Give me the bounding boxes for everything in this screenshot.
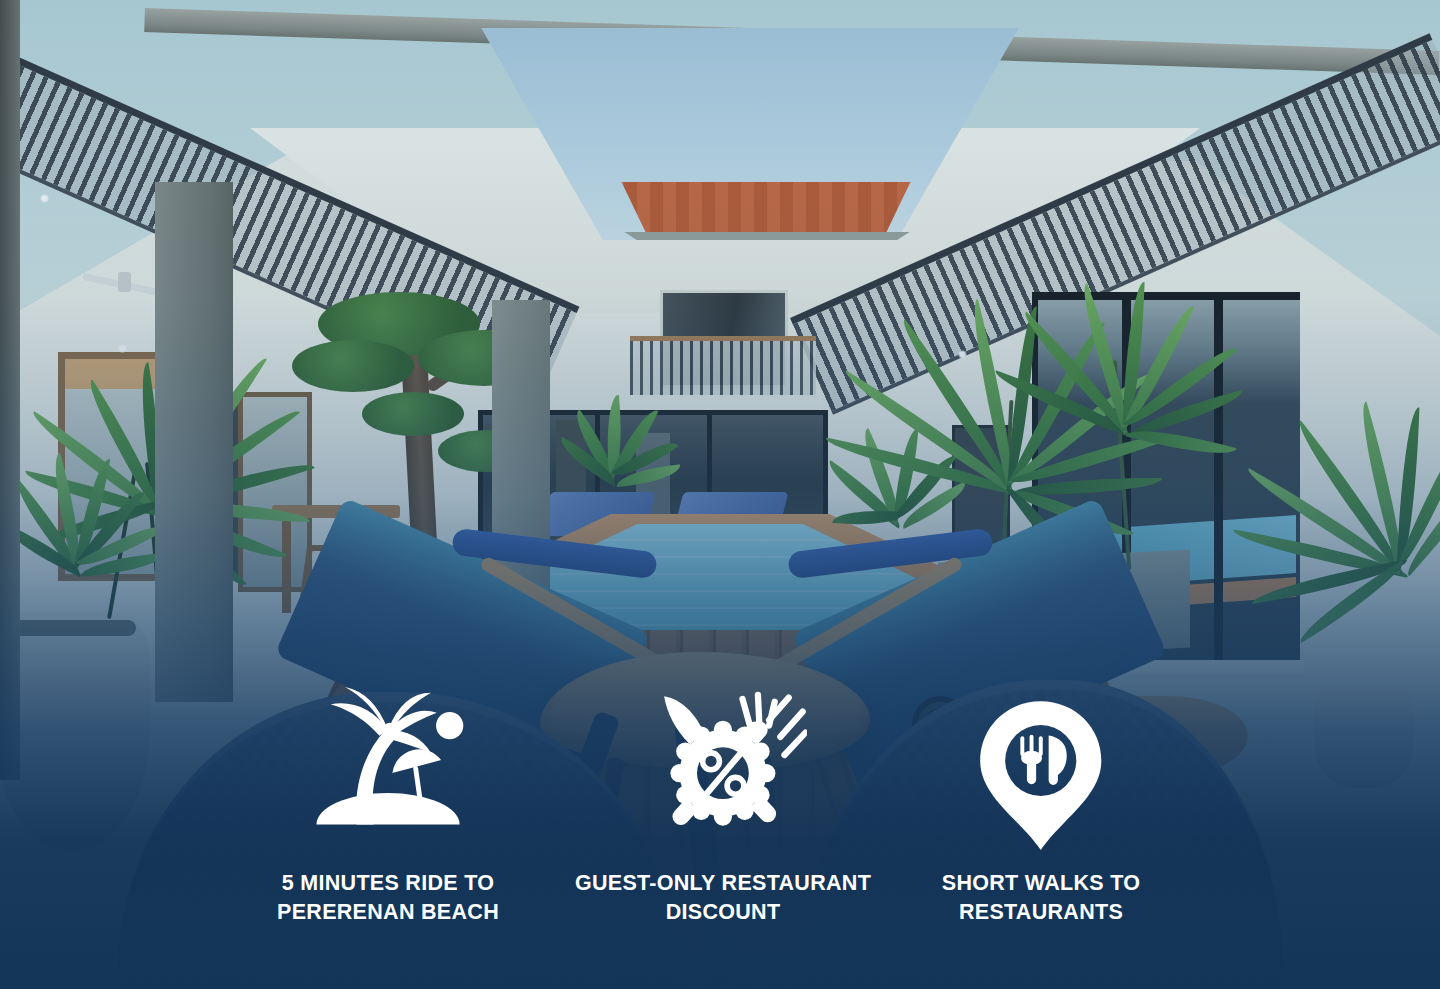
feature-callouts: 5 MINUTES RIDE TO PERERENAN BEACH <box>0 0 1440 989</box>
promo-image: 5 MINUTES RIDE TO PERERENAN BEACH <box>0 0 1440 989</box>
feature-restaurants-line2: RESTAURANTS <box>959 898 1123 927</box>
feature-restaurants: SHORT WALKS TO RESTAURANTS <box>942 695 1141 927</box>
feature-discount-line2: DISCOUNT <box>666 898 781 927</box>
restaurant-discount-percent-icon <box>639 685 807 853</box>
feature-discount: GUEST-ONLY RESTAURANT DISCOUNT <box>575 685 871 927</box>
restaurant-location-pin-icon <box>962 695 1120 855</box>
feature-beach: 5 MINUTES RIDE TO PERERENAN BEACH <box>277 687 499 927</box>
feature-beach-line1: 5 MINUTES RIDE TO <box>282 869 495 898</box>
feature-discount-line1: GUEST-ONLY RESTAURANT <box>575 869 871 898</box>
beach-island-palm-umbrella-icon <box>299 687 477 859</box>
feature-beach-line2: PERERENAN BEACH <box>277 898 499 927</box>
feature-restaurants-line1: SHORT WALKS TO <box>942 869 1141 898</box>
